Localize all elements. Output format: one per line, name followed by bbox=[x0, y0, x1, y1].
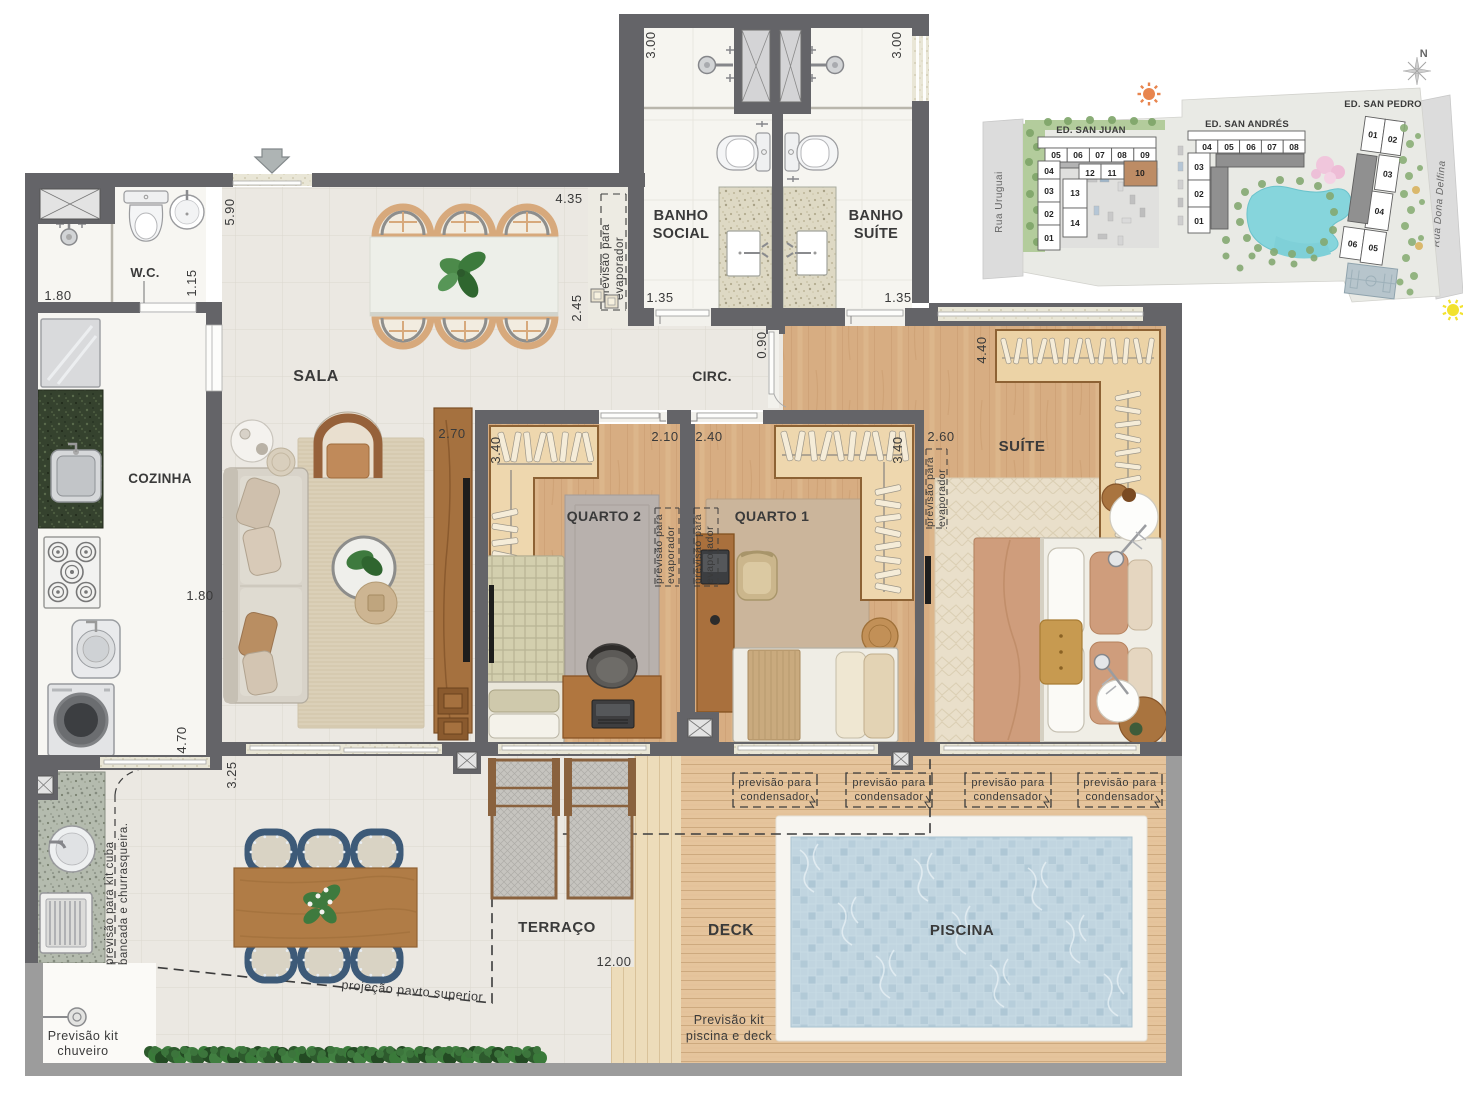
svg-text:1.35: 1.35 bbox=[646, 290, 673, 305]
svg-text:Previsão kit: Previsão kit bbox=[694, 1013, 765, 1027]
svg-text:evaporador: evaporador bbox=[665, 526, 677, 584]
svg-text:04: 04 bbox=[1044, 166, 1054, 176]
svg-text:03: 03 bbox=[1382, 168, 1393, 179]
svg-text:2.60: 2.60 bbox=[927, 429, 954, 444]
svg-text:piscina e deck: piscina e deck bbox=[686, 1029, 772, 1043]
svg-text:Rua Uruguai: Rua Uruguai bbox=[994, 171, 1005, 233]
svg-text:4.35: 4.35 bbox=[555, 191, 582, 206]
svg-text:1.15: 1.15 bbox=[184, 269, 199, 296]
svg-text:condensador: condensador bbox=[973, 791, 1042, 803]
svg-text:ED. SAN JUAN: ED. SAN JUAN bbox=[1056, 125, 1125, 136]
svg-text:bancada e churrasqueira.: bancada e churrasqueira. bbox=[118, 823, 130, 965]
svg-text:ED. SAN PEDRO: ED. SAN PEDRO bbox=[1344, 99, 1422, 110]
svg-text:08: 08 bbox=[1117, 150, 1127, 160]
svg-text:01: 01 bbox=[1368, 129, 1379, 140]
svg-text:05: 05 bbox=[1368, 242, 1379, 253]
svg-text:04: 04 bbox=[1374, 206, 1385, 217]
svg-text:3.00: 3.00 bbox=[889, 31, 904, 58]
svg-text:previsão para: previsão para bbox=[738, 777, 812, 789]
svg-text:05: 05 bbox=[1224, 142, 1234, 152]
svg-text:previsão para: previsão para bbox=[1083, 777, 1157, 789]
svg-text:evaporador: evaporador bbox=[704, 526, 716, 584]
svg-text:06: 06 bbox=[1246, 142, 1256, 152]
svg-text:SUÍTE: SUÍTE bbox=[999, 438, 1046, 455]
svg-text:2.40: 2.40 bbox=[695, 429, 722, 444]
svg-text:previsão para kit cuba: previsão para kit cuba bbox=[104, 841, 116, 965]
svg-text:5.90: 5.90 bbox=[222, 198, 237, 225]
svg-text:07: 07 bbox=[1095, 150, 1105, 160]
svg-text:12: 12 bbox=[1085, 168, 1095, 178]
svg-text:evaporador: evaporador bbox=[936, 469, 948, 527]
svg-text:SALA: SALA bbox=[293, 368, 339, 385]
svg-text:3.40: 3.40 bbox=[890, 436, 905, 463]
svg-text:chuveiro: chuveiro bbox=[57, 1044, 108, 1058]
svg-text:PISCINA: PISCINA bbox=[930, 922, 994, 939]
svg-text:05: 05 bbox=[1051, 150, 1061, 160]
svg-text:03: 03 bbox=[1194, 162, 1204, 172]
svg-text:07: 07 bbox=[1267, 142, 1277, 152]
svg-text:3.25: 3.25 bbox=[224, 761, 239, 788]
svg-text:03: 03 bbox=[1044, 186, 1054, 196]
svg-text:QUARTO 2: QUARTO 2 bbox=[567, 508, 642, 524]
svg-text:02: 02 bbox=[1387, 134, 1398, 145]
svg-text:BANHO: BANHO bbox=[849, 208, 904, 224]
svg-text:4.70: 4.70 bbox=[174, 726, 189, 753]
svg-text:2.70: 2.70 bbox=[438, 426, 465, 441]
svg-text:4.40: 4.40 bbox=[974, 336, 989, 363]
svg-text:condensador: condensador bbox=[1085, 791, 1154, 803]
svg-text:QUARTO 1: QUARTO 1 bbox=[735, 508, 810, 524]
svg-text:N: N bbox=[1420, 48, 1428, 60]
svg-text:SUÍTE: SUÍTE bbox=[854, 225, 898, 242]
svg-text:Previsão kit: Previsão kit bbox=[48, 1029, 119, 1043]
svg-text:12.00: 12.00 bbox=[596, 954, 631, 969]
svg-text:10: 10 bbox=[1135, 168, 1145, 178]
svg-text:08: 08 bbox=[1289, 142, 1299, 152]
svg-text:2.10: 2.10 bbox=[651, 429, 678, 444]
svg-text:CIRC.: CIRC. bbox=[692, 368, 732, 384]
svg-text:11: 11 bbox=[1108, 168, 1117, 178]
svg-text:06: 06 bbox=[1073, 150, 1083, 160]
svg-text:condensador: condensador bbox=[740, 791, 809, 803]
svg-text:previsão para: previsão para bbox=[852, 777, 926, 789]
svg-text:04: 04 bbox=[1202, 142, 1212, 152]
svg-text:W.C.: W.C. bbox=[130, 265, 159, 280]
svg-text:01: 01 bbox=[1194, 216, 1204, 226]
svg-text:01: 01 bbox=[1044, 233, 1054, 243]
svg-text:DECK: DECK bbox=[708, 922, 754, 939]
svg-text:COZINHA: COZINHA bbox=[128, 471, 192, 486]
svg-text:SOCIAL: SOCIAL bbox=[653, 226, 710, 242]
svg-text:3.00: 3.00 bbox=[643, 31, 658, 58]
svg-text:evaporador: evaporador bbox=[614, 237, 626, 300]
svg-text:1.35: 1.35 bbox=[884, 290, 911, 305]
svg-text:previsão para: previsão para bbox=[692, 514, 704, 584]
svg-text:ED. SAN ANDRÉS: ED. SAN ANDRÉS bbox=[1205, 119, 1289, 130]
svg-text:BANHO: BANHO bbox=[654, 208, 709, 224]
svg-text:14: 14 bbox=[1070, 218, 1080, 228]
svg-text:1.80: 1.80 bbox=[44, 288, 71, 303]
svg-text:13: 13 bbox=[1070, 188, 1080, 198]
svg-text:02: 02 bbox=[1044, 209, 1054, 219]
svg-text:previsão para: previsão para bbox=[653, 514, 665, 584]
svg-text:3.40: 3.40 bbox=[488, 436, 503, 463]
svg-text:TERRAÇO: TERRAÇO bbox=[518, 919, 596, 936]
svg-text:0.90: 0.90 bbox=[754, 331, 769, 358]
svg-text:02: 02 bbox=[1194, 189, 1204, 199]
svg-text:condensador: condensador bbox=[854, 791, 923, 803]
svg-text:09: 09 bbox=[1140, 150, 1150, 160]
svg-text:previsão para: previsão para bbox=[971, 777, 1045, 789]
svg-text:previsão para: previsão para bbox=[924, 457, 936, 527]
svg-text:1.80: 1.80 bbox=[186, 588, 213, 603]
svg-text:2.45: 2.45 bbox=[569, 294, 584, 321]
svg-text:06: 06 bbox=[1347, 238, 1358, 249]
